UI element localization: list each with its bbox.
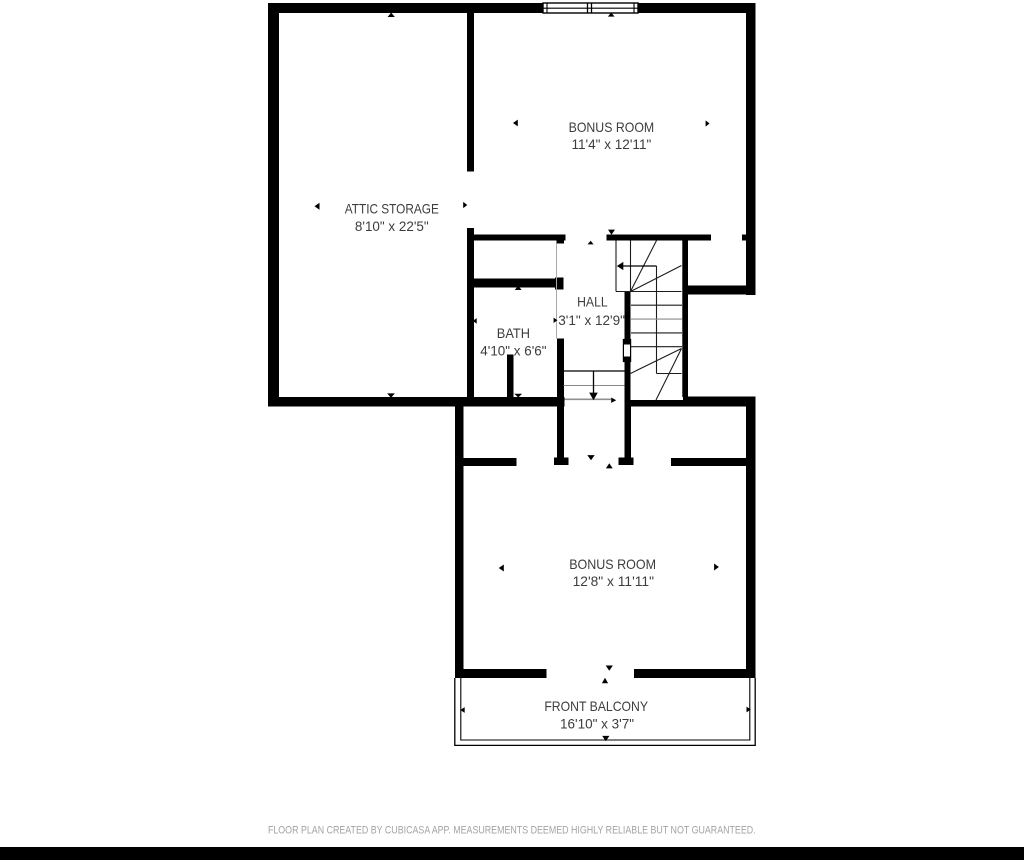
- svg-text:8'10" x 22'5": 8'10" x 22'5": [355, 218, 429, 234]
- svg-text:ATTIC STORAGE: ATTIC STORAGE: [345, 201, 439, 217]
- svg-text:16'10" x 3'7": 16'10" x 3'7": [560, 716, 634, 732]
- svg-text:11'4" x 12'11": 11'4" x 12'11": [572, 136, 652, 152]
- svg-text:12'8" x 11'11": 12'8" x 11'11": [573, 573, 654, 589]
- svg-text:FLOOR PLAN CREATED BY CUBICASA: FLOOR PLAN CREATED BY CUBICASA APP. MEAS…: [268, 824, 756, 836]
- svg-text:BONUS ROOM: BONUS ROOM: [569, 119, 655, 135]
- svg-text:3'1" x 12'9": 3'1" x 12'9": [558, 312, 625, 328]
- svg-text:BONUS ROOM: BONUS ROOM: [569, 556, 656, 572]
- svg-text:FRONT BALCONY: FRONT BALCONY: [544, 698, 648, 714]
- svg-text:BATH: BATH: [497, 325, 530, 341]
- svg-text:HALL: HALL: [577, 294, 608, 310]
- svg-text:4'10" x 6'6": 4'10" x 6'6": [480, 342, 546, 358]
